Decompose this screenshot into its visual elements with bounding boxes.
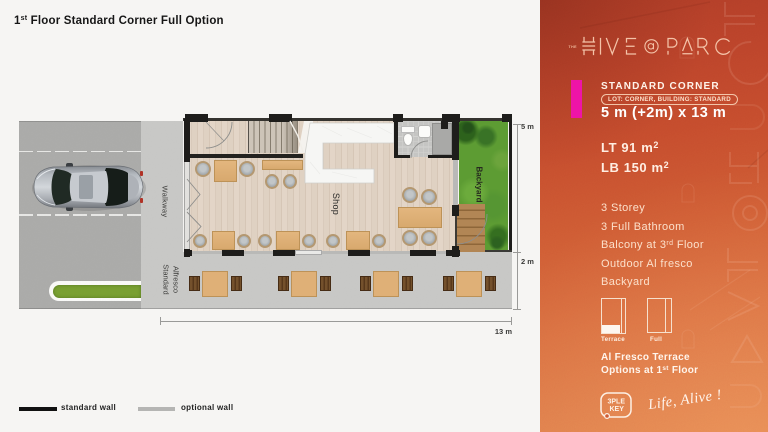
svg-text:THE: THE	[569, 45, 578, 49]
svg-text:KEY: KEY	[610, 406, 625, 413]
svg-text:3PLE: 3PLE	[608, 398, 626, 405]
